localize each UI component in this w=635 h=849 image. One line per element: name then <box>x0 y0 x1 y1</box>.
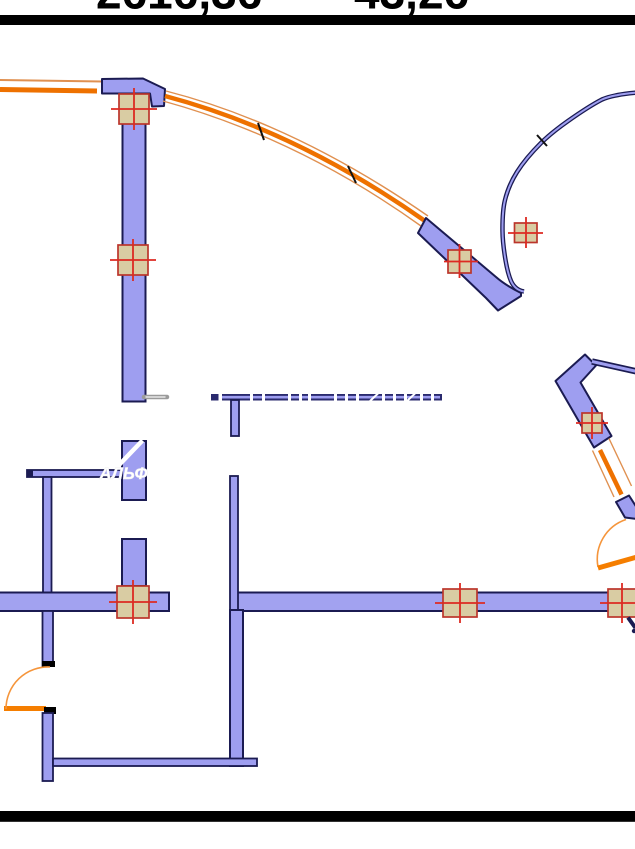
svg-text:АЛЬФ: АЛЬФ <box>99 465 148 483</box>
